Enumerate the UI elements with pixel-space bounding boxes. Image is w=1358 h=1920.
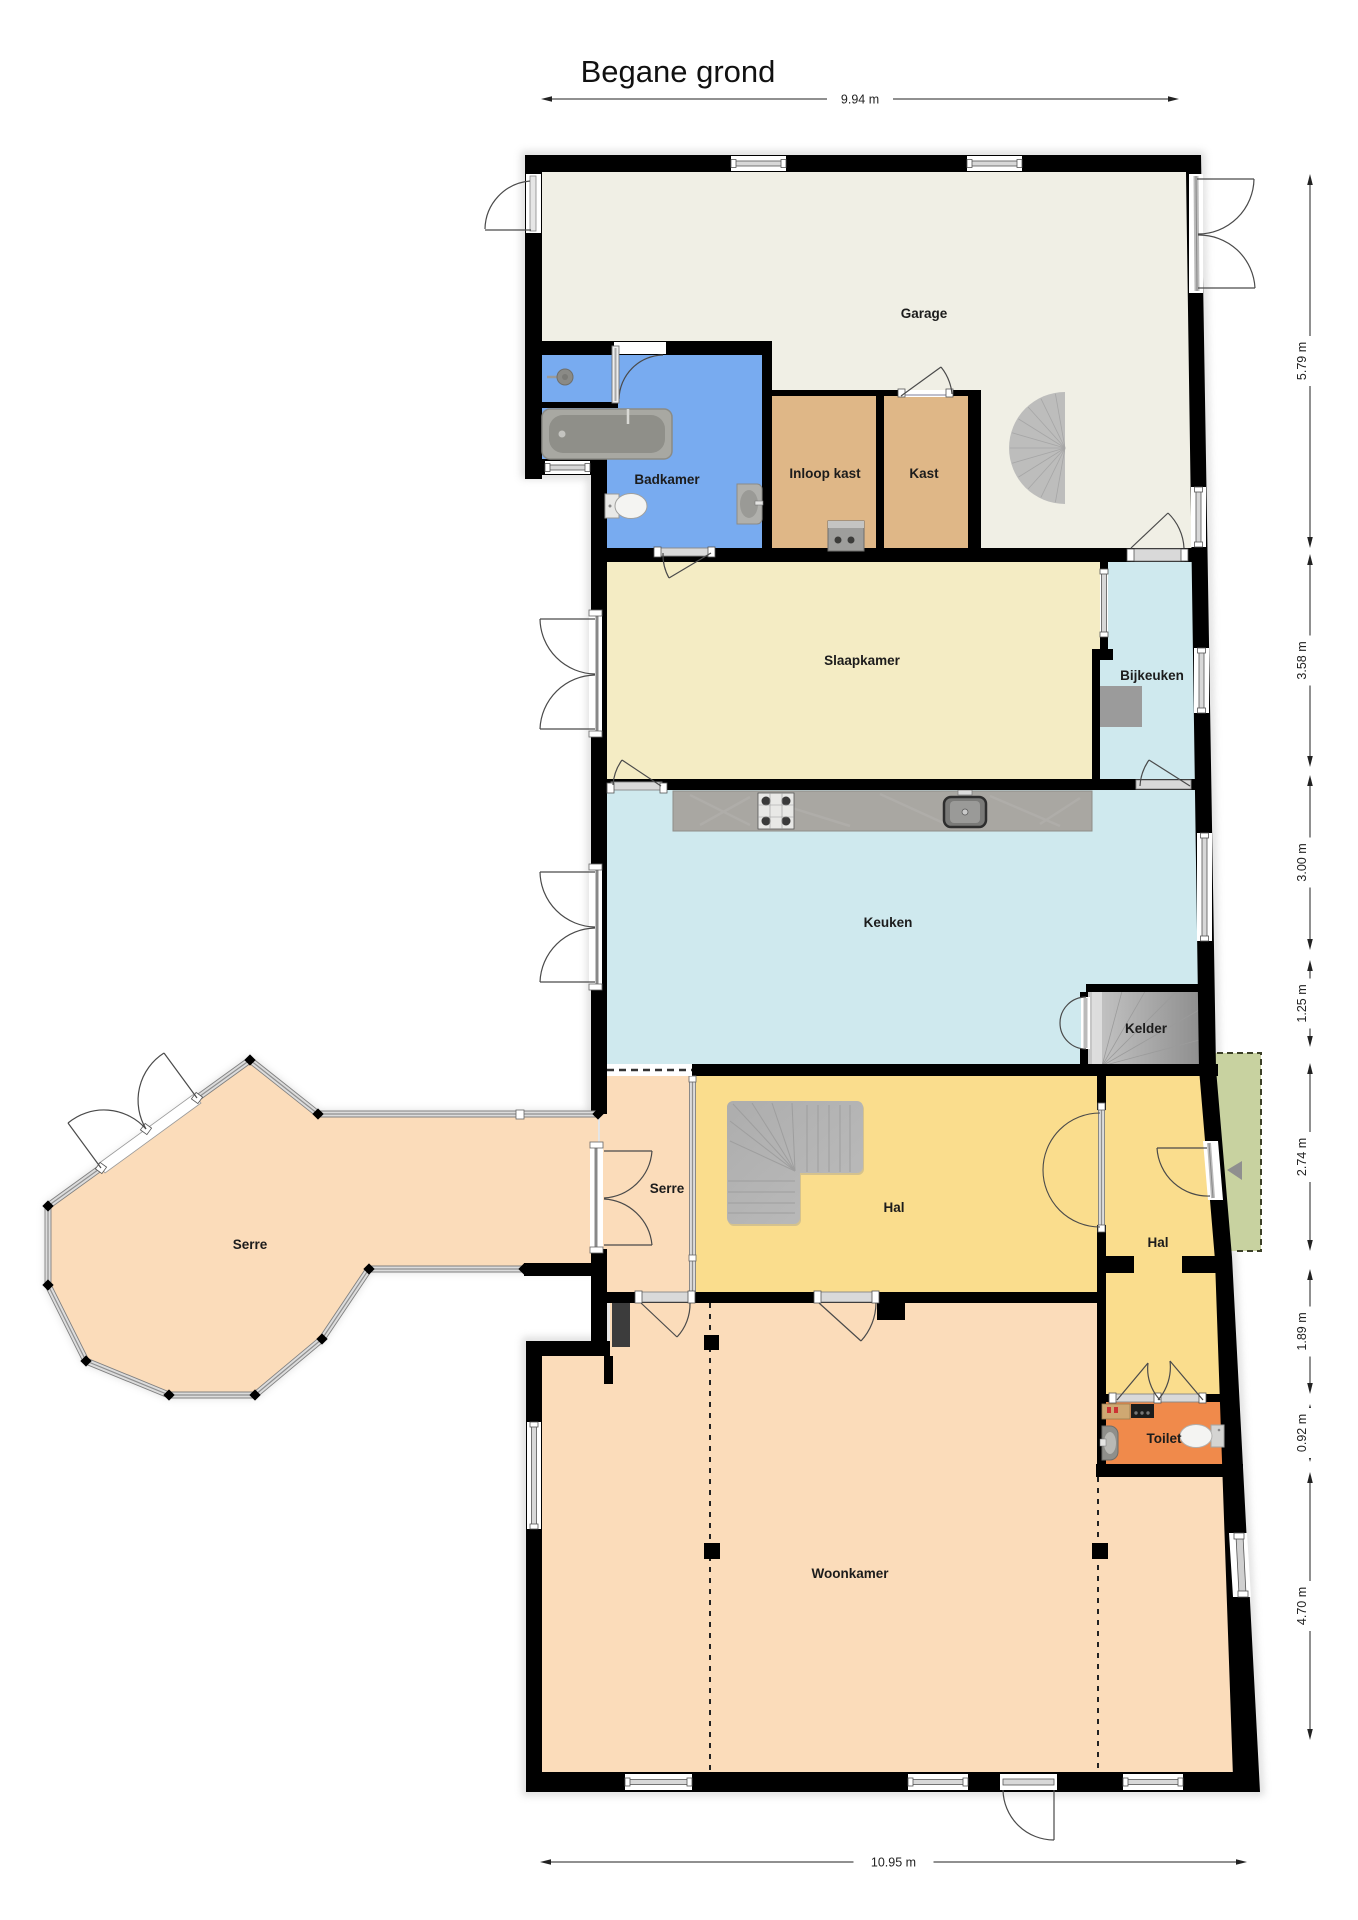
svg-text:0.92 m: 0.92 m xyxy=(1295,1414,1309,1452)
svg-text:4.70 m: 4.70 m xyxy=(1295,1587,1309,1625)
svg-text:9.94 m: 9.94 m xyxy=(841,93,879,107)
svg-text:3.00 m: 3.00 m xyxy=(1295,843,1309,881)
svg-text:Keuken: Keuken xyxy=(864,915,913,930)
svg-text:Serre: Serre xyxy=(233,1237,268,1252)
svg-text:Garage: Garage xyxy=(901,306,948,321)
svg-text:Woonkamer: Woonkamer xyxy=(811,1566,889,1581)
svg-text:Slaapkamer: Slaapkamer xyxy=(824,653,901,668)
svg-text:3.58 m: 3.58 m xyxy=(1295,641,1309,679)
svg-text:1.25 m: 1.25 m xyxy=(1295,984,1309,1022)
svg-text:2.74 m: 2.74 m xyxy=(1295,1138,1309,1176)
svg-text:1.89 m: 1.89 m xyxy=(1295,1312,1309,1350)
svg-text:Toilet: Toilet xyxy=(1147,1431,1183,1446)
svg-text:Hal: Hal xyxy=(1147,1235,1168,1250)
svg-text:Inloop kast: Inloop kast xyxy=(789,466,861,481)
svg-text:10.95 m: 10.95 m xyxy=(871,1856,916,1870)
svg-text:Badkamer: Badkamer xyxy=(634,472,700,487)
svg-text:Hal: Hal xyxy=(883,1200,904,1215)
svg-text:5.79 m: 5.79 m xyxy=(1295,342,1309,380)
svg-text:Bijkeuken: Bijkeuken xyxy=(1120,668,1184,683)
svg-text:Kelder: Kelder xyxy=(1125,1021,1168,1036)
svg-text:Kast: Kast xyxy=(909,466,939,481)
svg-text:Serre: Serre xyxy=(650,1181,685,1196)
svg-text:Begane grond: Begane grond xyxy=(581,54,776,89)
